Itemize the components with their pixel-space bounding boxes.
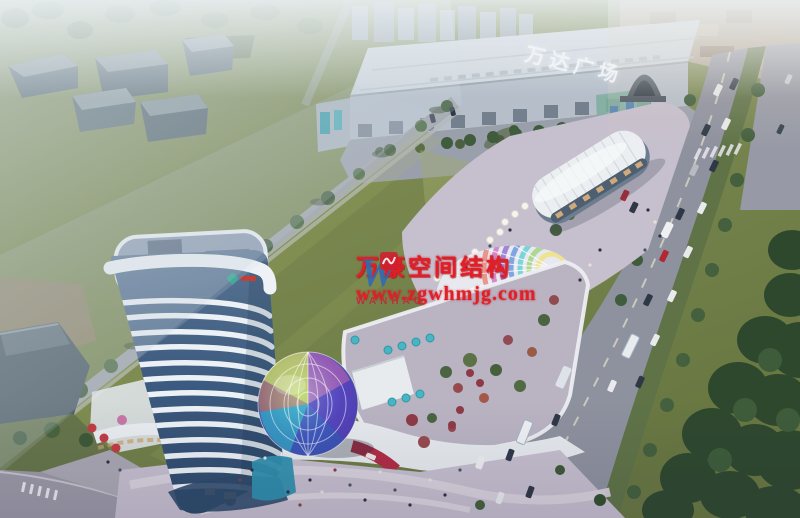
umbrella [512,211,519,218]
shop-window [575,102,589,115]
umbrella [416,390,424,398]
umbrella [522,203,529,210]
tree [730,173,744,187]
umbrella [351,336,359,344]
shop-window [482,112,496,125]
umbrella [476,379,484,387]
tree [455,139,465,149]
logo-wordmark: WANHAO [356,296,426,307]
shop-window [544,105,558,118]
watermark: W WANHAO 万豪空间结构 www.zgwhmjg.com [352,248,537,306]
haze-top [0,0,800,98]
umbrella [466,369,474,377]
shop-window [513,109,527,122]
umbrella [398,342,406,350]
tree [705,263,719,277]
tree [691,308,705,322]
umbrella [502,219,509,226]
umbrella [487,237,494,244]
vignette-bottom [0,400,800,518]
wanhao-logo-icon: W WANHAO [352,248,438,310]
tree [676,353,690,367]
dome-shine [274,375,306,395]
tree [615,294,627,306]
umbrella [412,338,420,346]
umbrella [384,346,392,354]
umbrella [497,229,504,236]
aerial-rendering: 万达广场 W WANHAO 万豪空间结构 www.zgwhmjg.com [0,0,800,518]
tree [718,218,732,232]
umbrella [426,334,434,342]
logo-wordmark [241,276,256,281]
